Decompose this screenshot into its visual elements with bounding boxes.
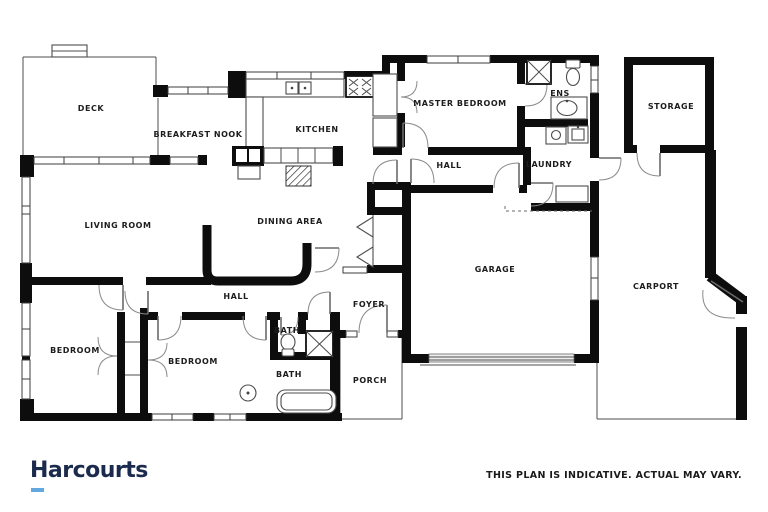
floor-plan-canvas: DECK BREAKFAST NOOK KITCHEN MASTER BEDRO… [0,0,768,512]
room-label-master-bedroom: MASTER BEDROOM [413,99,506,108]
wc-toilet-icon [281,334,295,356]
room-label-porch: PORCH [353,376,387,385]
ensuite-shower-icon [527,60,551,84]
room-label-ensuite: ENS [550,89,570,98]
cooktop-icon [346,76,374,97]
pedestal-basin-icon [240,385,256,401]
room-label-carport: CARPORT [633,282,679,291]
kitchen-counter-return [246,97,263,147]
bifold-doors-icon [357,215,373,267]
curved-hall-wall [207,225,307,281]
room-label-living-room: LIVING ROOM [84,221,151,230]
room-label-bath-lower: BATH [276,370,302,379]
room-label-storage: STORAGE [648,102,694,111]
room-label-bedroom-2: BEDROOM [168,357,218,366]
room-label-kitchen: KITCHEN [295,125,338,134]
room-label-foyer: FOYER [353,300,385,309]
kitchen-pantry [373,118,397,147]
deck-outline [23,45,158,156]
room-label-bath-upper: BATH [274,326,300,335]
ensuite-vanity-icon [551,97,587,119]
garage-door [420,354,576,365]
doors [98,81,743,377]
bath-shower-icon [306,331,333,357]
harcourts-logo: Harcourts [30,458,148,483]
laundry-tub-icon [568,126,588,143]
room-label-bedroom-1: BEDROOM [50,346,100,355]
room-label-deck: DECK [78,104,105,113]
laundry-bench [556,186,588,202]
master-wardrobe [373,74,397,116]
room-label-hall-upper: HALL [436,161,461,170]
room-label-hall-lower: HALL [223,292,248,301]
room-label-dining-area: DINING AREA [257,217,323,226]
hearth-icon [286,166,311,186]
ensuite-toilet-icon [566,60,580,86]
carport-outline [597,363,747,419]
harcourts-logo-underline [31,488,44,492]
bathtub-icon [277,390,336,413]
floor-plan-page: DECK BREAKFAST NOOK KITCHEN MASTER BEDRO… [0,0,768,512]
plan-disclaimer: THIS PLAN IS INDICATIVE. ACTUAL MAY VARY… [486,470,742,481]
harcourts-logo-text: Harcourts [30,458,148,483]
room-label-breakfast-nook: BREAKFAST NOOK [153,130,242,139]
room-label-laundry: LAUNDRY [526,160,572,169]
room-label-garage: GARAGE [475,265,515,274]
